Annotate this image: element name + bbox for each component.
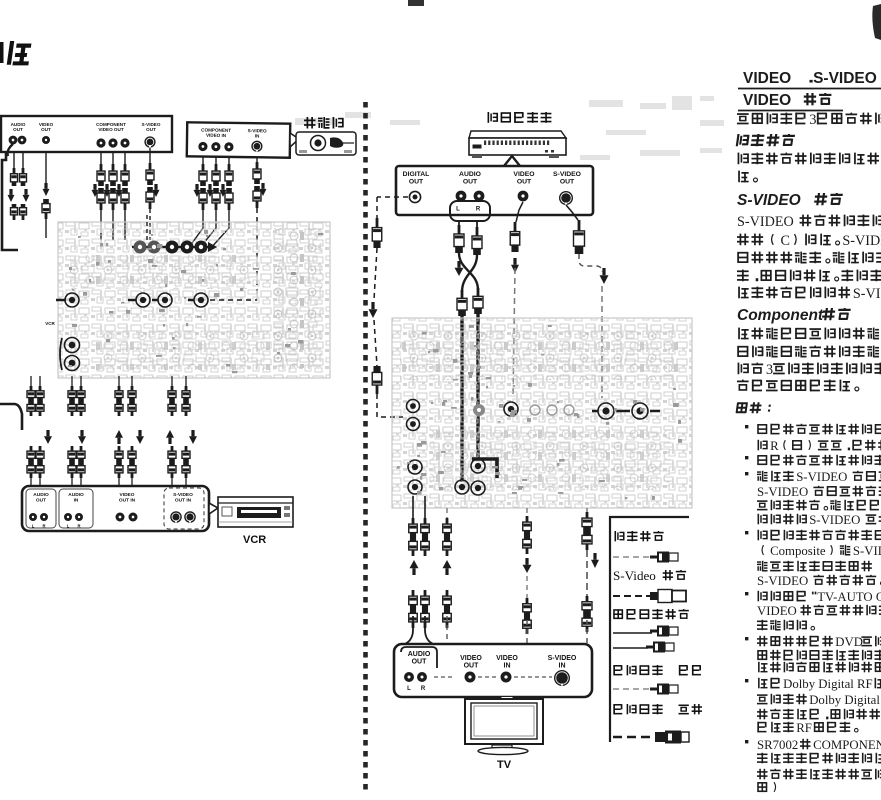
svg-text:IN: IN [504, 663, 511, 670]
svg-text:VIDEO OUT: VIDEO OUT [98, 127, 123, 132]
svg-text:VIDEO: VIDEO [460, 655, 482, 662]
svg-text:SR7002: SR7002 [757, 738, 798, 752]
svg-text:C: C [781, 233, 790, 249]
svg-text:Dolby Digital RF: Dolby Digital RF [809, 693, 881, 707]
svg-text:VIDEO: VIDEO [496, 655, 518, 662]
svg-text:OUT: OUT [412, 659, 428, 666]
svg-text:VIDEO: VIDEO [120, 492, 135, 498]
svg-text:OUT: OUT [517, 178, 532, 185]
svg-text:IN: IN [255, 133, 260, 138]
svg-text:3: 3 [809, 112, 816, 128]
svg-text:S-VIDEO: S-VIDEO [757, 485, 808, 499]
svg-text:IN: IN [74, 497, 79, 503]
svg-text:VIDEO: VIDEO [743, 92, 791, 109]
svg-text:S-VIDEO: S-VIDEO [737, 192, 801, 209]
svg-text:L: L [456, 207, 460, 213]
svg-text:DIGITAL: DIGITAL [403, 171, 430, 178]
svg-text:AUDIO: AUDIO [459, 171, 481, 178]
svg-text:S-Video: S-Video [613, 568, 656, 583]
svg-text:AUDIO: AUDIO [33, 492, 49, 498]
svg-text:S-VIDEO: S-VIDEO [548, 655, 577, 662]
svg-text:S-VIDEO: S-VIDEO [757, 574, 808, 588]
svg-text:L: L [407, 686, 411, 692]
svg-text:VCR: VCR [243, 534, 266, 546]
svg-text:OUT: OUT [146, 127, 156, 132]
svg-text:OUT: OUT [13, 127, 23, 132]
svg-text:TV: TV [497, 759, 512, 771]
svg-text:R: R [421, 686, 426, 692]
svg-text:OUT: OUT [560, 178, 575, 185]
svg-text:Component: Component [737, 307, 824, 324]
svg-text:IN: IN [559, 663, 566, 670]
svg-text:RF: RF [796, 721, 812, 735]
svg-text:S-VIDEO: S-VIDEO [813, 70, 877, 87]
svg-text:OUT IN: OUT IN [119, 497, 136, 503]
svg-text:L: L [32, 524, 35, 529]
svg-text:VIDEO IN: VIDEO IN [206, 133, 227, 138]
svg-text:S-VIDEO: S-VIDEO [553, 171, 581, 178]
svg-text:Dolby Digital RF: Dolby Digital RF [783, 677, 873, 691]
svg-text:OUT IN: OUT IN [175, 497, 192, 503]
svg-text:COMPONENT OU: COMPONENT OU [813, 738, 881, 752]
svg-text:S-VIDEO: S-VIDEO [853, 544, 881, 558]
svg-text:R: R [77, 524, 80, 529]
svg-text:S-VIDE: S-VIDE [853, 286, 881, 302]
svg-text:3: 3 [766, 362, 773, 378]
svg-text:VIDEO: VIDEO [743, 70, 791, 87]
svg-text:S-VIDEO: S-VIDEO [796, 470, 847, 484]
svg-text:L: L [67, 524, 70, 529]
svg-text:DVD: DVD [835, 635, 863, 649]
svg-text:VIDEO: VIDEO [757, 604, 797, 618]
svg-text:S-VIDEO: S-VIDEO [737, 214, 794, 230]
svg-text:OUT: OUT [464, 663, 480, 670]
svg-text:OUT: OUT [36, 497, 46, 503]
svg-text:VCR: VCR [45, 321, 55, 326]
svg-text:OUT: OUT [409, 178, 424, 185]
svg-text:AUDIO: AUDIO [68, 492, 84, 498]
svg-text:OUT: OUT [463, 178, 478, 185]
svg-text:Composite: Composite [770, 544, 826, 558]
svg-text:R: R [770, 439, 779, 453]
svg-text:S-VIDEO: S-VIDEO [173, 492, 193, 498]
svg-text:TV-AUTO ON/O: TV-AUTO ON/O [817, 590, 881, 604]
svg-text:R: R [476, 207, 481, 213]
svg-text:OUT: OUT [41, 127, 51, 132]
svg-text:S-VIDEO: S-VIDEO [842, 233, 881, 249]
svg-text:S-VIDEO: S-VIDEO [809, 513, 860, 527]
svg-text:VIDEO: VIDEO [513, 171, 534, 178]
svg-text:R: R [42, 524, 45, 529]
svg-text:AUDIO: AUDIO [408, 651, 431, 658]
